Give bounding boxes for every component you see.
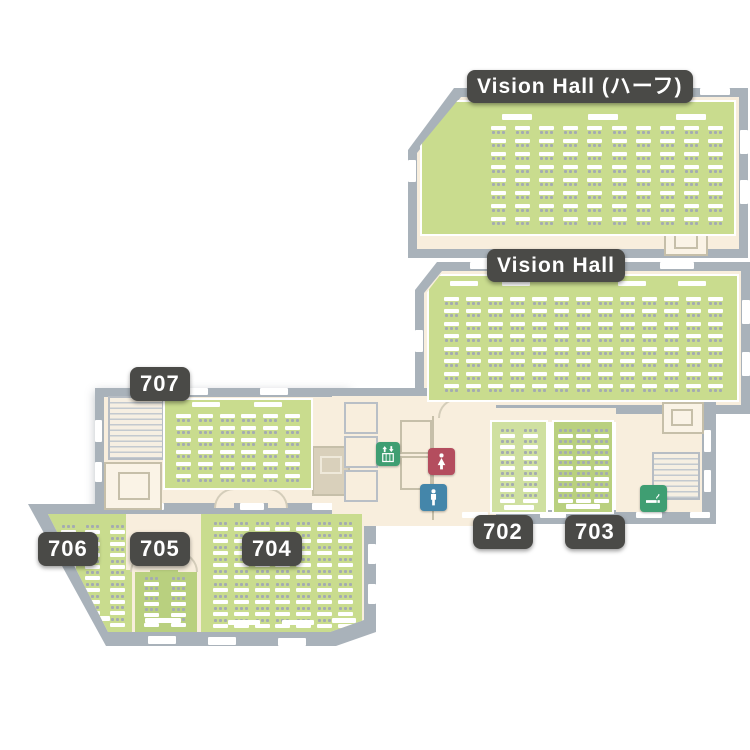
room-vision-hall-label[interactable]: Vision Hall [487, 249, 625, 282]
room-702-label[interactable]: 702 [473, 515, 533, 549]
room-707-label[interactable]: 707 [130, 367, 190, 401]
elevator-icon [376, 442, 400, 466]
elevator-shaft [344, 402, 378, 434]
room-vision-hall-half-label[interactable]: Vision Hall (ハーフ) [467, 70, 693, 103]
elevator-shaft [344, 470, 378, 502]
room-702[interactable] [490, 420, 548, 514]
vision-hall-seats [440, 295, 726, 395]
room-vision-hall[interactable] [427, 274, 739, 402]
room-707-seats [173, 412, 303, 484]
utility-room [662, 402, 704, 434]
smoking-area-icon [640, 485, 667, 512]
mens-toilet-icon [420, 484, 447, 511]
floor-plan: Vision Hall (ハーフ) Vision Hall 707 [0, 0, 750, 750]
room-704-label[interactable]: 704 [242, 532, 302, 566]
room-705-label[interactable]: 705 [130, 532, 190, 566]
womens-toilet-icon [428, 448, 455, 475]
room-vision-hall-half[interactable] [420, 100, 736, 236]
room-707[interactable] [163, 398, 313, 490]
west-stairs [108, 396, 164, 460]
room-702-seats [496, 428, 542, 504]
vision-hall-half-seats [486, 124, 728, 228]
elevator-shaft [344, 436, 378, 468]
room-703-label[interactable]: 703 [565, 515, 625, 549]
west-utility-room [104, 462, 162, 510]
duct-room [400, 420, 432, 454]
room-703-seats [556, 428, 610, 504]
room-703[interactable] [552, 420, 614, 514]
room-706-label[interactable]: 706 [38, 532, 98, 566]
